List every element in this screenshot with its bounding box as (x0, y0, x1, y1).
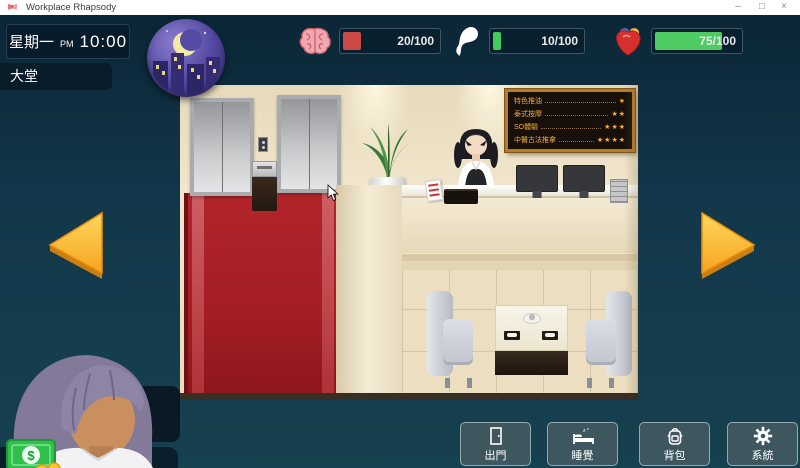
window-title: Workplace Rhapsody (26, 2, 116, 13)
maximize-button[interactable]: □ (752, 0, 772, 14)
navigate-left-arrow[interactable] (44, 211, 106, 279)
menu-leader-line (541, 128, 601, 129)
table-top (495, 305, 568, 351)
spirit-value: 10/100 (541, 29, 578, 53)
minimize-button[interactable]: – (728, 0, 748, 14)
bed-icon: z z (571, 426, 595, 446)
receptionist-npc[interactable] (450, 125, 502, 187)
chair-leg (587, 378, 592, 388)
trash-bin (252, 161, 277, 211)
elevator-door-panel (281, 99, 310, 189)
menu-item: 中醫古法推拿 ★★★★ (514, 135, 626, 147)
elevator-door-panel (194, 102, 223, 192)
menu-item-label: 特色推油 (514, 96, 542, 108)
sleep-button[interactable]: z z 睡覺 (547, 422, 618, 466)
table-bowl (523, 313, 541, 324)
stat-spirit: 10/100 (452, 24, 585, 58)
elevator-door-panel (223, 102, 251, 192)
day-label: 星期一 (9, 31, 54, 52)
system-label: 系統 (752, 447, 774, 463)
elevator-door-panel (310, 99, 338, 189)
elevator-door-left[interactable] (190, 98, 254, 196)
meridiem-label: PM (60, 39, 74, 49)
heart-bar: 75/100 (651, 28, 743, 54)
chair-seat (443, 319, 473, 365)
menu-item: 特色推油 ★ (514, 96, 626, 108)
door-icon (486, 426, 506, 446)
chair-leg (467, 378, 472, 388)
towel-tray (504, 331, 520, 340)
menu-item-stars: ★★★★ (597, 135, 626, 147)
scene-shadow (624, 85, 638, 400)
desk-tray (444, 189, 478, 204)
brain-bar-fill (343, 32, 361, 50)
menu-leader-line (545, 102, 616, 103)
chair-leg (609, 378, 614, 388)
time-display: 星期一 PM 10:00 (6, 24, 130, 59)
lobby-scene: 特色推油 ★ 泰式按摩 ★★ SO體驗 ★★★ 中醫古法推拿 ★★★★ (180, 85, 638, 400)
scene-baseboard (180, 393, 638, 400)
svg-text:z: z (587, 426, 589, 431)
window-titlebar: Workplace Rhapsody – □ × (0, 0, 800, 15)
money-icon: $ $ (6, 439, 64, 468)
chair-leg (445, 378, 450, 388)
elevator-call-button[interactable] (258, 137, 268, 152)
gear-icon (753, 426, 773, 446)
elevator-door-right[interactable] (277, 95, 341, 193)
desk-molding (402, 253, 638, 261)
game-background: 星期一 PM 10:00 大堂 (0, 15, 800, 468)
trash-bin-body (252, 177, 277, 211)
carpet-edge (184, 193, 188, 393)
menu-item-stars: ★★★ (604, 122, 626, 134)
brain-value: 20/100 (397, 29, 434, 53)
day-night-indicator (147, 19, 225, 97)
stat-heart: 75/100 (612, 24, 743, 58)
towel-tray (542, 331, 558, 340)
mouse-cursor (327, 184, 339, 202)
brain-bar: 20/100 (339, 28, 441, 54)
carpet-stripe (322, 193, 334, 393)
desk-monitor (516, 165, 558, 192)
menu-item: SO體驗 ★★★ (514, 122, 626, 134)
desk-sign (425, 179, 444, 202)
close-button[interactable]: × (774, 0, 794, 14)
stat-brain: 20/100 (298, 24, 441, 58)
heart-icon (612, 25, 644, 57)
chair-seat (586, 319, 616, 365)
menu-item-label: 泰式按摩 (514, 109, 542, 121)
spirit-icon (452, 25, 482, 57)
sleep-label: 睡覺 (572, 447, 594, 463)
menu-leader-line (559, 141, 594, 142)
go-out-label: 出門 (485, 447, 507, 463)
menu-item-label: 中醫古法推拿 (514, 135, 556, 147)
lobby-table (495, 305, 568, 375)
trash-bin-lid (252, 161, 277, 177)
reception-desk-front (402, 198, 638, 270)
brain-icon (298, 26, 332, 56)
go-out-button[interactable]: 出門 (460, 422, 531, 466)
backpack-icon (665, 426, 685, 446)
location-label: 大堂 (0, 63, 112, 90)
time-label: 10:00 (79, 32, 127, 52)
menu-item-label: SO體驗 (514, 122, 538, 134)
carpet-stripe (192, 193, 204, 393)
table-base (495, 351, 568, 375)
spirit-bar-fill (493, 32, 501, 50)
wall-column (336, 185, 406, 394)
backpack-button[interactable]: 背包 (639, 422, 710, 466)
navigate-right-arrow[interactable] (698, 211, 760, 279)
desk-monitor (563, 165, 605, 192)
butterfly-app-icon (7, 3, 18, 13)
potted-plant-leaves (356, 119, 420, 183)
service-menu-board: 特色推油 ★ 泰式按摩 ★★ SO體驗 ★★★ 中醫古法推拿 ★★★★ (505, 89, 635, 152)
svg-text:$: $ (27, 448, 35, 463)
system-button[interactable]: 系統 (727, 422, 798, 466)
menu-item: 泰式按摩 ★★ (514, 109, 626, 121)
spirit-bar: 10/100 (489, 28, 585, 54)
lobby-armchair (427, 291, 475, 388)
red-carpet (184, 193, 342, 393)
moon-city-icon (147, 19, 225, 97)
menu-leader-line (545, 115, 608, 116)
backpack-label: 背包 (664, 447, 686, 463)
svg-text:z: z (583, 428, 586, 434)
heart-value: 75/100 (699, 29, 736, 53)
